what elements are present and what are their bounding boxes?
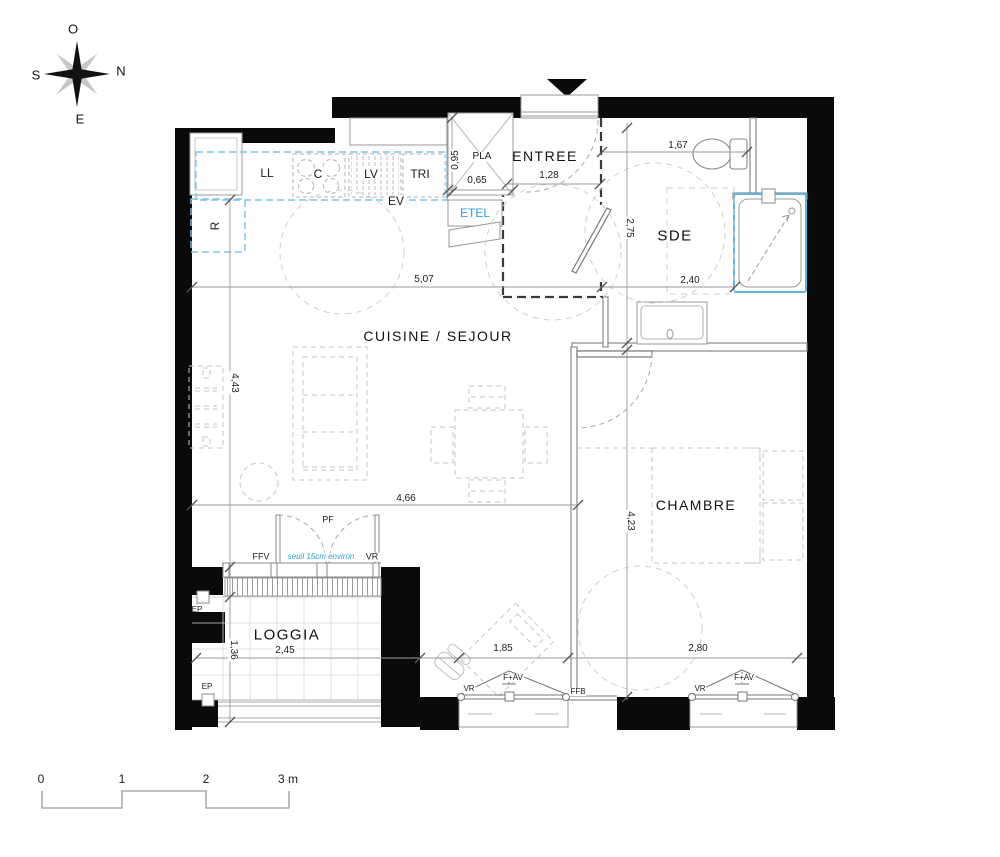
room-label-cuisine-sejour: CUISINE / SEJOUR (361, 329, 514, 343)
dim-entree-width: 1,28 (537, 171, 560, 181)
compass-east-label: E (74, 113, 87, 126)
dim-sde-height: 2,75 (624, 216, 634, 239)
threshold-note: seuil 15cm environ (286, 553, 357, 561)
vanity-basin (637, 302, 707, 344)
ffb-label: FFB (569, 688, 586, 696)
desk-chair (432, 641, 473, 682)
dim-chambre-height: 4,23 (625, 509, 635, 532)
closet-label-etel: ETEL (458, 207, 492, 219)
compass-rose-icon (44, 41, 110, 107)
dim-sejour-width: 5,07 (412, 275, 435, 285)
kitchen-label-ll: LL (258, 167, 275, 179)
ep-label-top: EP (191, 606, 204, 614)
closet-label-pla: PLA (471, 152, 494, 162)
scale-tick-1: 1 (117, 773, 128, 785)
window2-fav-label: F+AV (733, 674, 755, 682)
compass-north-label: N (114, 65, 127, 78)
plan-linework (0, 0, 1000, 857)
room-label-loggia: LOGGIA (252, 628, 323, 643)
opening-label-pf: PF (321, 516, 335, 525)
scale-tick-3: 3 m (276, 773, 300, 785)
loggia-railing (218, 702, 381, 722)
dim-pla-width: 0,65 (465, 176, 488, 186)
ep-label-bottom: EP (201, 683, 214, 691)
window1-fav-label: F+AV (502, 674, 524, 682)
dim-loggia-height: 1,36 (228, 638, 238, 661)
loggia-window (222, 563, 381, 577)
dashed-partitions (503, 118, 603, 297)
room-label-sde: SDE (655, 229, 694, 244)
opening-label-ffv: FFV (252, 553, 271, 562)
kitchen-label-ev: EV (386, 195, 406, 207)
entrance-arrow-icon (547, 79, 587, 97)
dim-chambre-width: 2,80 (686, 644, 709, 654)
toilet (693, 139, 747, 169)
threshold-hatch (225, 578, 381, 596)
dim-sejour-height: 4,43 (229, 371, 239, 394)
kitchen-label-c: C (312, 168, 325, 180)
dim-window1-width: 1,85 (491, 644, 514, 654)
kitchen-label-tri: TRI (408, 168, 431, 180)
opening-label-vr-loggia: VR (365, 553, 380, 562)
compass-south-label: S (30, 69, 43, 82)
window1-vr-label: VR (462, 685, 475, 693)
scale-tick-0: 0 (36, 773, 47, 785)
dim-sde-width: 2,40 (678, 276, 701, 286)
dim-sde-top: 1,67 (666, 141, 689, 151)
kitchen-label-r: R (209, 220, 221, 233)
kitchen-label-lv: LV (362, 168, 380, 180)
room-label-entree: ENTREE (510, 149, 580, 163)
dim-pla-height: 0,95 (451, 148, 461, 171)
shower (734, 189, 806, 292)
floor-plan: O N S E ENTREE SDE CUISINE / SEJOUR CHAM… (0, 0, 1000, 857)
dim-loggia-width: 2,45 (273, 646, 296, 656)
compass-west-label: O (66, 23, 80, 36)
scale-tick-2: 2 (201, 773, 212, 785)
window2-vr-label: VR (693, 685, 706, 693)
room-label-chambre: CHAMBRE (654, 498, 739, 512)
dim-sejour-bottom: 4,66 (394, 494, 417, 504)
scale-bar (42, 791, 289, 808)
